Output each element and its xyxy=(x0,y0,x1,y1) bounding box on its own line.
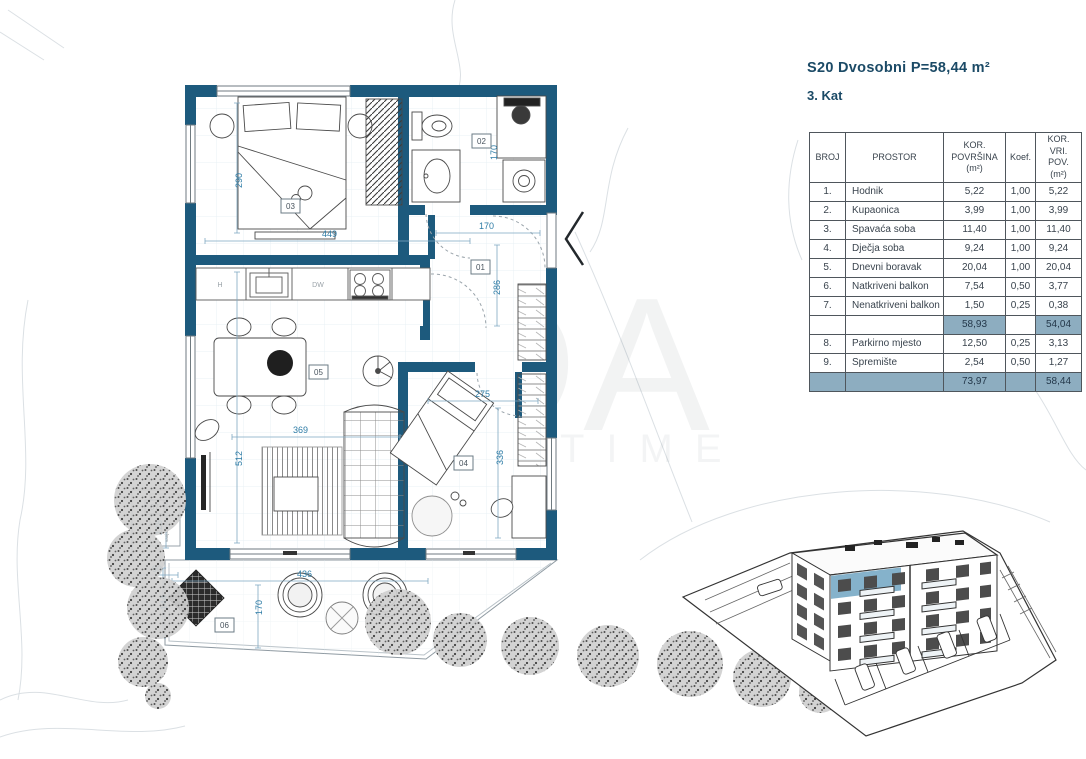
dim-hall-height: 286 xyxy=(492,280,502,295)
shower-bar-icon xyxy=(504,98,540,106)
shower-head-icon xyxy=(512,106,530,124)
col-header-koef: Koef. xyxy=(1006,133,1036,183)
table-total-row: 73,97 58,44 xyxy=(810,372,1082,391)
cell-vrijednost: 1,27 xyxy=(1036,353,1082,372)
cell-koef: 1,00 xyxy=(1006,182,1036,201)
cell-vrijednost: 3,77 xyxy=(1036,277,1082,296)
cell-koef: 1,00 xyxy=(1006,258,1036,277)
svg-text:06: 06 xyxy=(220,621,229,630)
svg-text:03: 03 xyxy=(286,202,295,211)
dim-balcony-width: 436 xyxy=(297,569,312,579)
cell-povrsina: 12,50 xyxy=(944,334,1006,353)
dishwasher-label: DW xyxy=(312,282,324,289)
cell-prostor xyxy=(846,372,944,391)
cell-povrsina-total: 73,97 xyxy=(944,372,1006,391)
svg-text:05: 05 xyxy=(314,368,323,377)
toilet-tank xyxy=(412,112,422,140)
chair xyxy=(272,318,296,336)
table-row: 7. Nenatkriveni balkon 1,50 0,25 0,38 xyxy=(810,296,1082,315)
cell-vrijednost: 20,04 xyxy=(1036,258,1082,277)
table-header-row: BROJ PROSTOR KOR. POVRŠINA (m²) Koef. KO… xyxy=(810,133,1082,183)
dim-bedroom-width: 449 xyxy=(322,229,337,239)
toy xyxy=(451,492,459,500)
table-row: 4. Dječja soba 9,24 1,00 9,24 xyxy=(810,239,1082,258)
cell-broj xyxy=(810,315,846,334)
cell-koef: 1,00 xyxy=(1006,201,1036,220)
table-row: 1. Hodnik 5,22 1,00 5,22 xyxy=(810,182,1082,201)
cell-prostor: Kupaonica xyxy=(846,201,944,220)
table-row: 5. Dnevni boravak 20,04 1,00 20,04 xyxy=(810,258,1082,277)
table-row: 9. Spremište 2,54 0,50 1,27 xyxy=(810,353,1082,372)
cell-broj: 8. xyxy=(810,334,846,353)
door-handle xyxy=(463,551,475,555)
table-subtotal-row: 58,93 54,04 xyxy=(810,315,1082,334)
cell-broj: 5. xyxy=(810,258,846,277)
table-row: 6. Natkriveni balkon 7,54 0,50 3,77 xyxy=(810,277,1082,296)
cell-koef: 0,50 xyxy=(1006,353,1036,372)
svg-text:01: 01 xyxy=(476,263,485,272)
cell-povrsina: 2,54 xyxy=(944,353,1006,372)
svg-text:04: 04 xyxy=(459,459,468,468)
cell-broj: 2. xyxy=(810,201,846,220)
building-illustration xyxy=(683,531,1056,736)
cell-broj xyxy=(810,372,846,391)
cell-broj: 7. xyxy=(810,296,846,315)
chair xyxy=(227,318,251,336)
washing-machine xyxy=(503,160,545,202)
cell-povrsina: 11,40 xyxy=(944,220,1006,239)
col-header-povrsina: KOR. POVRŠINA (m²) xyxy=(944,133,1006,183)
cell-prostor: Natkriveni balkon xyxy=(846,277,944,296)
nightstand xyxy=(210,114,234,138)
room-label-bathroom: 02 xyxy=(472,134,491,148)
plan-floor-label: 3. Kat xyxy=(807,88,990,103)
coffee-table xyxy=(274,477,318,511)
room-label-bedroom: 03 xyxy=(281,199,300,213)
cell-prostor xyxy=(846,315,944,334)
cell-koef xyxy=(1006,315,1036,334)
col-header-broj: BROJ xyxy=(810,133,846,183)
dim-hall-width: 170 xyxy=(479,221,494,231)
watermark-small: TIME xyxy=(560,427,744,471)
cell-vrijednost-total: 58,44 xyxy=(1036,372,1082,391)
cell-povrsina: 1,50 xyxy=(944,296,1006,315)
cell-koef: 0,25 xyxy=(1006,296,1036,315)
cell-prostor: Dnevni boravak xyxy=(846,258,944,277)
pillow xyxy=(243,102,291,131)
title-block: S20 Dvosobni P=58,44 m² 3. Kat xyxy=(807,60,990,103)
dim-living-height: 512 xyxy=(234,451,244,466)
dim-living-width: 369 xyxy=(293,425,308,435)
cell-broj: 9. xyxy=(810,353,846,372)
svg-text:02: 02 xyxy=(477,137,486,146)
fridge-label: H xyxy=(217,282,222,289)
cell-broj: 6. xyxy=(810,277,846,296)
cell-vrijednost: 3,13 xyxy=(1036,334,1082,353)
stove xyxy=(350,270,390,300)
wicker-chair xyxy=(278,573,322,617)
cell-koef: 1,00 xyxy=(1006,220,1036,239)
plan-title: S20 Dvosobni P=58,44 m² xyxy=(807,60,990,76)
table-row: 2. Kupaonica 3,99 1,00 3,99 xyxy=(810,201,1082,220)
room-label-balcony: 06 xyxy=(215,618,234,632)
dim-kids-height: 336 xyxy=(495,450,505,465)
chair xyxy=(227,396,251,414)
area-table: BROJ PROSTOR KOR. POVRŠINA (m²) Koef. KO… xyxy=(809,132,1082,392)
desk xyxy=(512,476,546,538)
room-label-living-room: 05 xyxy=(309,365,328,379)
room-label-hallway: 01 xyxy=(471,260,490,274)
dim-kids-width: 275 xyxy=(475,389,490,399)
dim-balcony-depth: 170 xyxy=(254,600,264,615)
cell-koef: 0,50 xyxy=(1006,277,1036,296)
entrance-arrow-icon xyxy=(566,212,583,265)
table-row: 8. Parkirno mjesto 12,50 0,25 3,13 xyxy=(810,334,1082,353)
balcony-table xyxy=(326,602,358,634)
cell-prostor: Dječja soba xyxy=(846,239,944,258)
cell-vrijednost: 9,24 xyxy=(1036,239,1082,258)
cell-vrijednost-subtotal: 54,04 xyxy=(1036,315,1082,334)
col-header-vrijednost: KOR. VRI. POV. (m²) xyxy=(1036,133,1082,183)
cell-povrsina: 9,24 xyxy=(944,239,1006,258)
closet xyxy=(518,374,546,466)
cell-broj: 1. xyxy=(810,182,846,201)
wardrobe xyxy=(366,99,402,205)
cell-povrsina: 3,99 xyxy=(944,201,1006,220)
cell-vrijednost: 3,99 xyxy=(1036,201,1082,220)
toy xyxy=(460,500,466,506)
balcony-grid xyxy=(165,560,557,659)
cell-povrsina: 20,04 xyxy=(944,258,1006,277)
table-row: 3. Spavaća soba 11,40 1,00 11,40 xyxy=(810,220,1082,239)
cell-vrijednost: 0,38 xyxy=(1036,296,1082,315)
col-header-prostor: PROSTOR xyxy=(846,133,944,183)
tv xyxy=(201,455,206,510)
cell-prostor: Nenatkriveni balkon xyxy=(846,296,944,315)
cell-broj: 3. xyxy=(810,220,846,239)
cell-broj: 4. xyxy=(810,239,846,258)
chair xyxy=(272,396,296,414)
pillow xyxy=(296,103,340,131)
cell-povrsina: 7,54 xyxy=(944,277,1006,296)
cell-prostor: Spavaća soba xyxy=(846,220,944,239)
room-label-kids-room: 04 xyxy=(454,456,473,470)
plant xyxy=(267,350,293,376)
cell-prostor: Hodnik xyxy=(846,182,944,201)
dim-bedroom-height: 290 xyxy=(234,173,244,188)
building-right-facade xyxy=(830,555,997,671)
cell-prostor: Parkirno mjesto xyxy=(846,334,944,353)
cell-koef: 1,00 xyxy=(1006,239,1036,258)
sofa xyxy=(344,412,404,538)
round-rug xyxy=(412,496,452,536)
cell-vrijednost: 11,40 xyxy=(1036,220,1082,239)
cell-vrijednost: 5,22 xyxy=(1036,182,1082,201)
cell-koef xyxy=(1006,372,1036,391)
closet xyxy=(518,284,546,360)
cell-koef: 0,25 xyxy=(1006,334,1036,353)
cell-prostor: Spremište xyxy=(846,353,944,372)
cell-povrsina: 5,22 xyxy=(944,182,1006,201)
cell-povrsina-subtotal: 58,93 xyxy=(944,315,1006,334)
door-handle xyxy=(283,551,297,555)
